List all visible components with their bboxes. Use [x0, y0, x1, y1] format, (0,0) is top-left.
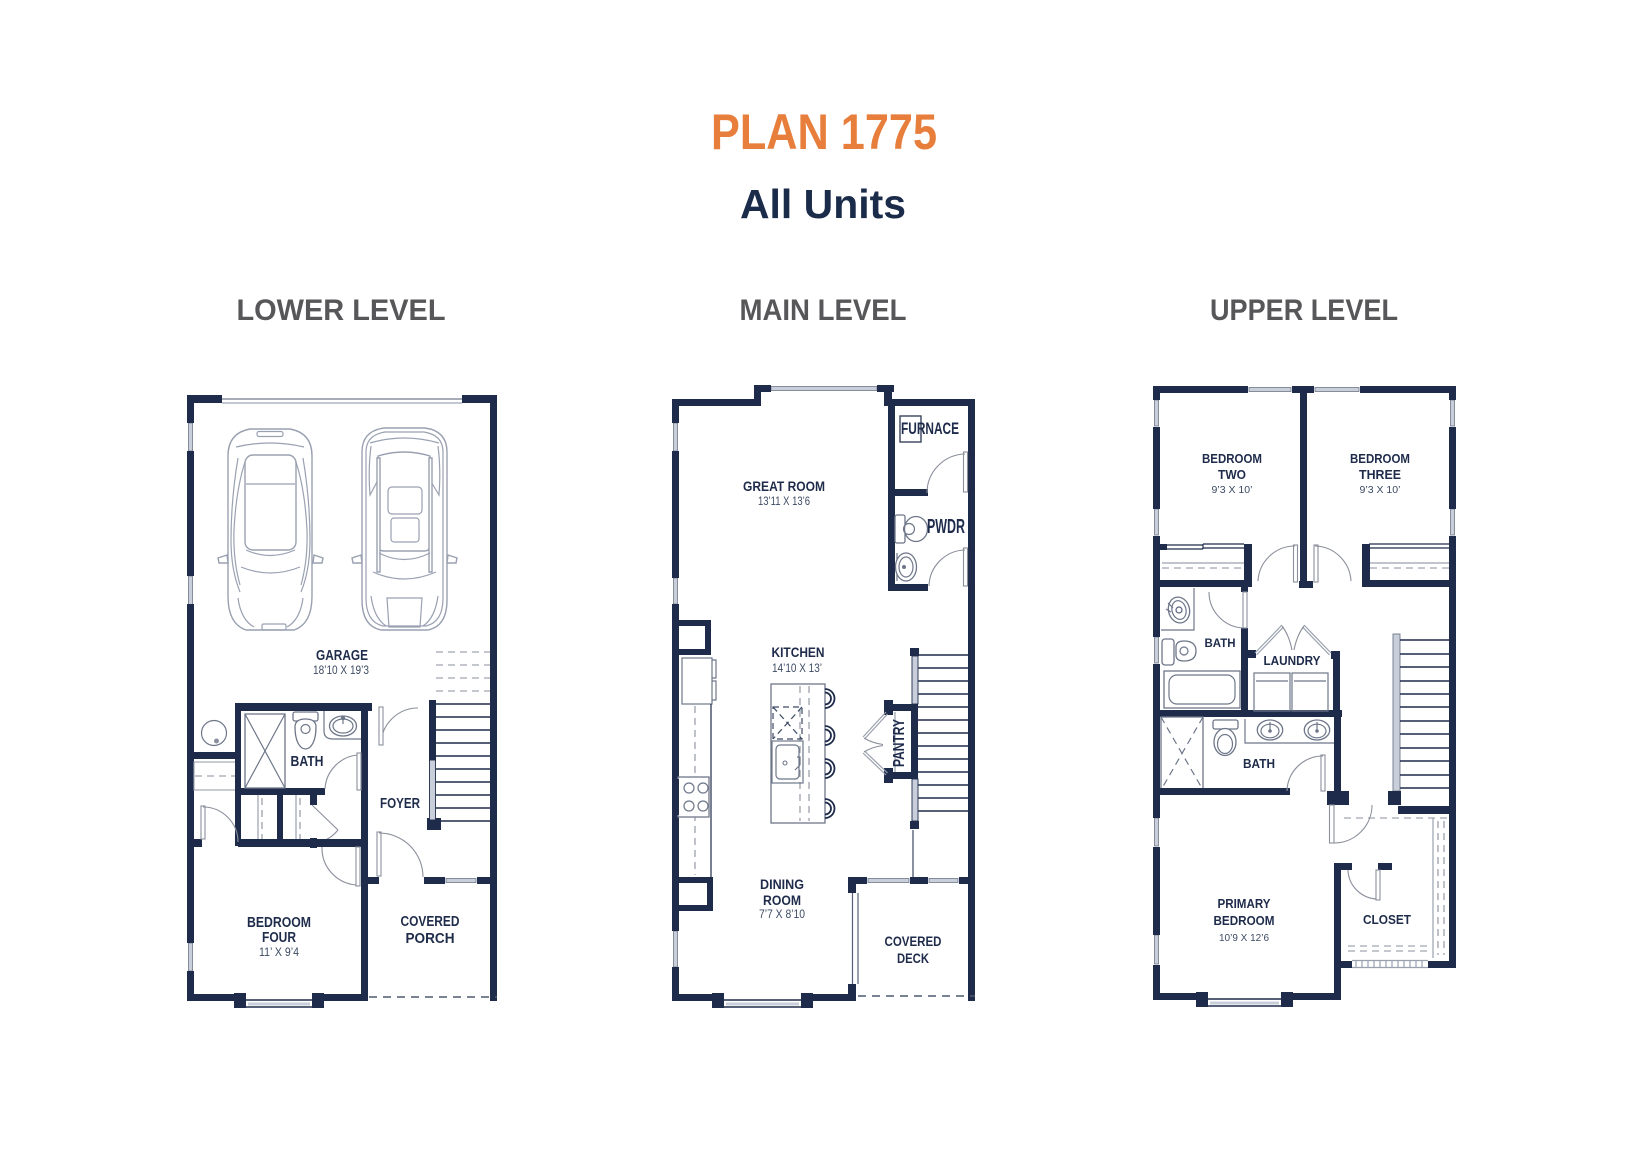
svg-text:13’11 X 13’6: 13’11 X 13’6	[758, 496, 810, 508]
svg-text:BATH: BATH	[291, 754, 324, 770]
svg-text:ROOM: ROOM	[763, 893, 801, 908]
svg-text:GREAT ROOM: GREAT ROOM	[743, 479, 825, 494]
svg-text:11’ X 9’4: 11’ X 9’4	[259, 947, 300, 959]
svg-text:BEDROOM: BEDROOM	[1350, 452, 1410, 466]
svg-text:LOWER LEVEL: LOWER LEVEL	[237, 294, 446, 327]
svg-text:THREE: THREE	[1359, 468, 1401, 482]
svg-text:14’10 X 13’: 14’10 X 13’	[772, 663, 822, 675]
svg-text:10’9 X 12’6: 10’9 X 12’6	[1219, 932, 1269, 944]
svg-text:PRIMARY: PRIMARY	[1218, 897, 1272, 911]
svg-text:KITCHEN: KITCHEN	[772, 645, 825, 660]
svg-text:9’3 X 10’: 9’3 X 10’	[1360, 484, 1401, 496]
svg-text:FOYER: FOYER	[380, 796, 420, 812]
svg-text:GARAGE: GARAGE	[316, 648, 368, 664]
svg-text:UPPER LEVEL: UPPER LEVEL	[1210, 294, 1398, 327]
svg-text:BEDROOM: BEDROOM	[247, 915, 311, 931]
svg-text:PLAN 1775: PLAN 1775	[711, 104, 937, 160]
svg-text:BATH: BATH	[1243, 757, 1275, 771]
svg-text:PANTRY: PANTRY	[891, 719, 908, 767]
svg-text:LAUNDRY: LAUNDRY	[1264, 654, 1322, 668]
svg-text:CLOSET: CLOSET	[1363, 913, 1411, 927]
svg-text:FURNACE: FURNACE	[901, 419, 959, 438]
svg-text:18’10 X 19’3: 18’10 X 19’3	[313, 665, 369, 677]
svg-text:DINING: DINING	[760, 877, 804, 892]
svg-text:TWO: TWO	[1218, 468, 1246, 482]
svg-text:FOUR: FOUR	[262, 930, 296, 946]
svg-text:MAIN LEVEL: MAIN LEVEL	[740, 294, 907, 327]
svg-text:COVERED: COVERED	[885, 934, 942, 949]
svg-text:7’7 X 8’10: 7’7 X 8’10	[759, 909, 805, 921]
svg-text:PWDR: PWDR	[927, 516, 965, 538]
svg-text:BEDROOM: BEDROOM	[1214, 914, 1275, 928]
svg-text:9’3 X 10’: 9’3 X 10’	[1212, 484, 1253, 496]
svg-text:BATH: BATH	[1205, 636, 1236, 650]
svg-text:All Units: All Units	[740, 181, 906, 227]
svg-text:BEDROOM: BEDROOM	[1202, 452, 1262, 466]
svg-text:DECK: DECK	[897, 951, 929, 966]
svg-text:PORCH: PORCH	[406, 931, 455, 947]
svg-text:COVERED: COVERED	[401, 914, 460, 930]
